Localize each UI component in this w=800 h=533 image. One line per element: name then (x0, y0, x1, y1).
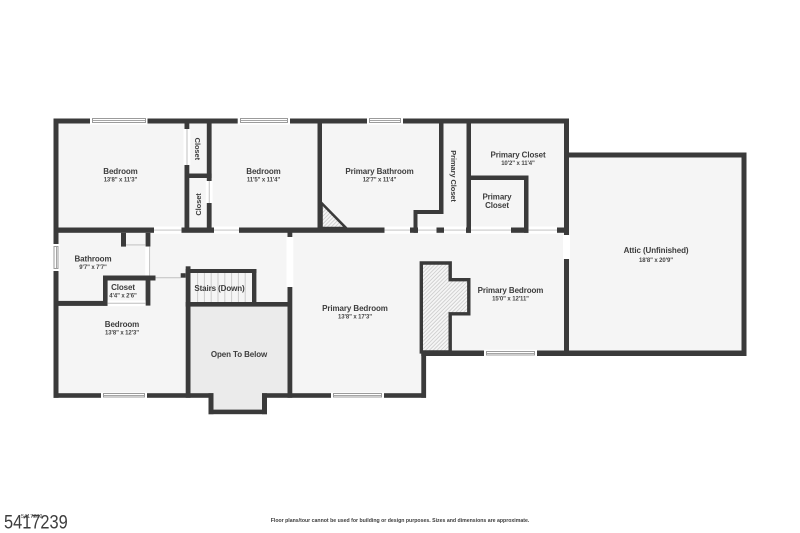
svg-text:Closet: Closet (111, 283, 135, 292)
svg-text:Primary Closet: Primary Closet (490, 150, 546, 159)
svg-text:Primary Bedroom: Primary Bedroom (478, 286, 544, 295)
svg-text:Bedroom: Bedroom (246, 167, 280, 176)
svg-text:Bathroom: Bathroom (75, 254, 112, 263)
svg-text:18'8" x 20'9": 18'8" x 20'9" (639, 258, 673, 264)
svg-text:11'5" x 11'4": 11'5" x 11'4" (247, 177, 281, 183)
svg-text:Bedroom: Bedroom (105, 320, 139, 329)
svg-text:Floor plans/tour cannot be use: Floor plans/tour cannot be used for buil… (271, 518, 530, 524)
svg-text:Attic (Unfinished): Attic (Unfinished) (624, 246, 689, 255)
svg-text:Primary Bedroom: Primary Bedroom (322, 304, 388, 313)
svg-text:Primary Bathroom: Primary Bathroom (345, 167, 413, 176)
svg-text:10'2" x 11'4": 10'2" x 11'4" (501, 161, 535, 167)
svg-text:Primary Closet: Primary Closet (449, 150, 458, 202)
svg-text:9'7" x 7'7": 9'7" x 7'7" (79, 265, 107, 271)
svg-text:Closet: Closet (193, 138, 202, 161)
svg-text:12'7" x 11'4": 12'7" x 11'4" (363, 177, 397, 183)
svg-text:Closet: Closet (194, 193, 203, 216)
svg-text:4'4" x 2'6": 4'4" x 2'6" (109, 293, 137, 299)
svg-text:5417239: 5417239 (21, 514, 42, 520)
svg-text:Closet: Closet (485, 201, 509, 210)
svg-text:Open To Below: Open To Below (211, 350, 268, 359)
svg-text:Bedroom: Bedroom (103, 167, 137, 176)
svg-text:Stairs (Down): Stairs (Down) (194, 284, 245, 293)
svg-text:13'8" x 11'3": 13'8" x 11'3" (104, 177, 138, 183)
svg-text:15'0" x 12'11": 15'0" x 12'11" (492, 296, 529, 302)
svg-text:13'8" x 12'3": 13'8" x 12'3" (105, 330, 139, 336)
svg-text:13'8" x 17'3": 13'8" x 17'3" (338, 314, 372, 320)
